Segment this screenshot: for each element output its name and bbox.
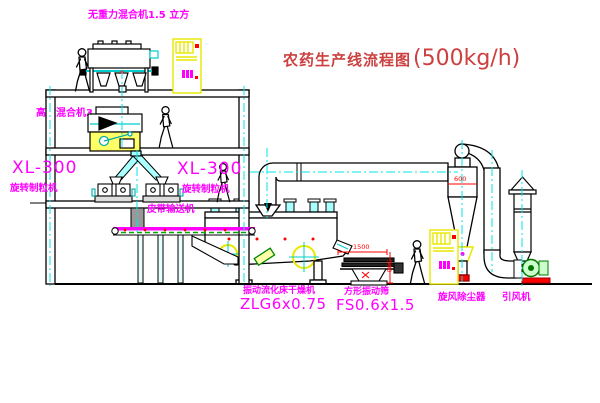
induced-draft-fan [514, 260, 550, 284]
fluid-bed-dryer [205, 199, 349, 284]
person-icon [217, 164, 230, 202]
diagram-canvas [0, 0, 600, 403]
process-flow-diagram: 高效混合机3.5立方 [0, 0, 600, 403]
high-efficiency-mixer [88, 107, 142, 156]
exhaust-duct [256, 163, 448, 216]
rotary-granulator-right [143, 177, 183, 202]
control-cabinet-icon [173, 39, 201, 93]
square-vibrating-sieve [333, 240, 403, 285]
gravity-mixer [80, 41, 158, 92]
downcomer-duct [484, 168, 516, 278]
person-icon [159, 107, 172, 147]
control-cabinet-icon [430, 230, 458, 284]
rotary-granulator-left [92, 177, 135, 202]
person-icon [411, 241, 425, 283]
y-chute [113, 156, 164, 180]
